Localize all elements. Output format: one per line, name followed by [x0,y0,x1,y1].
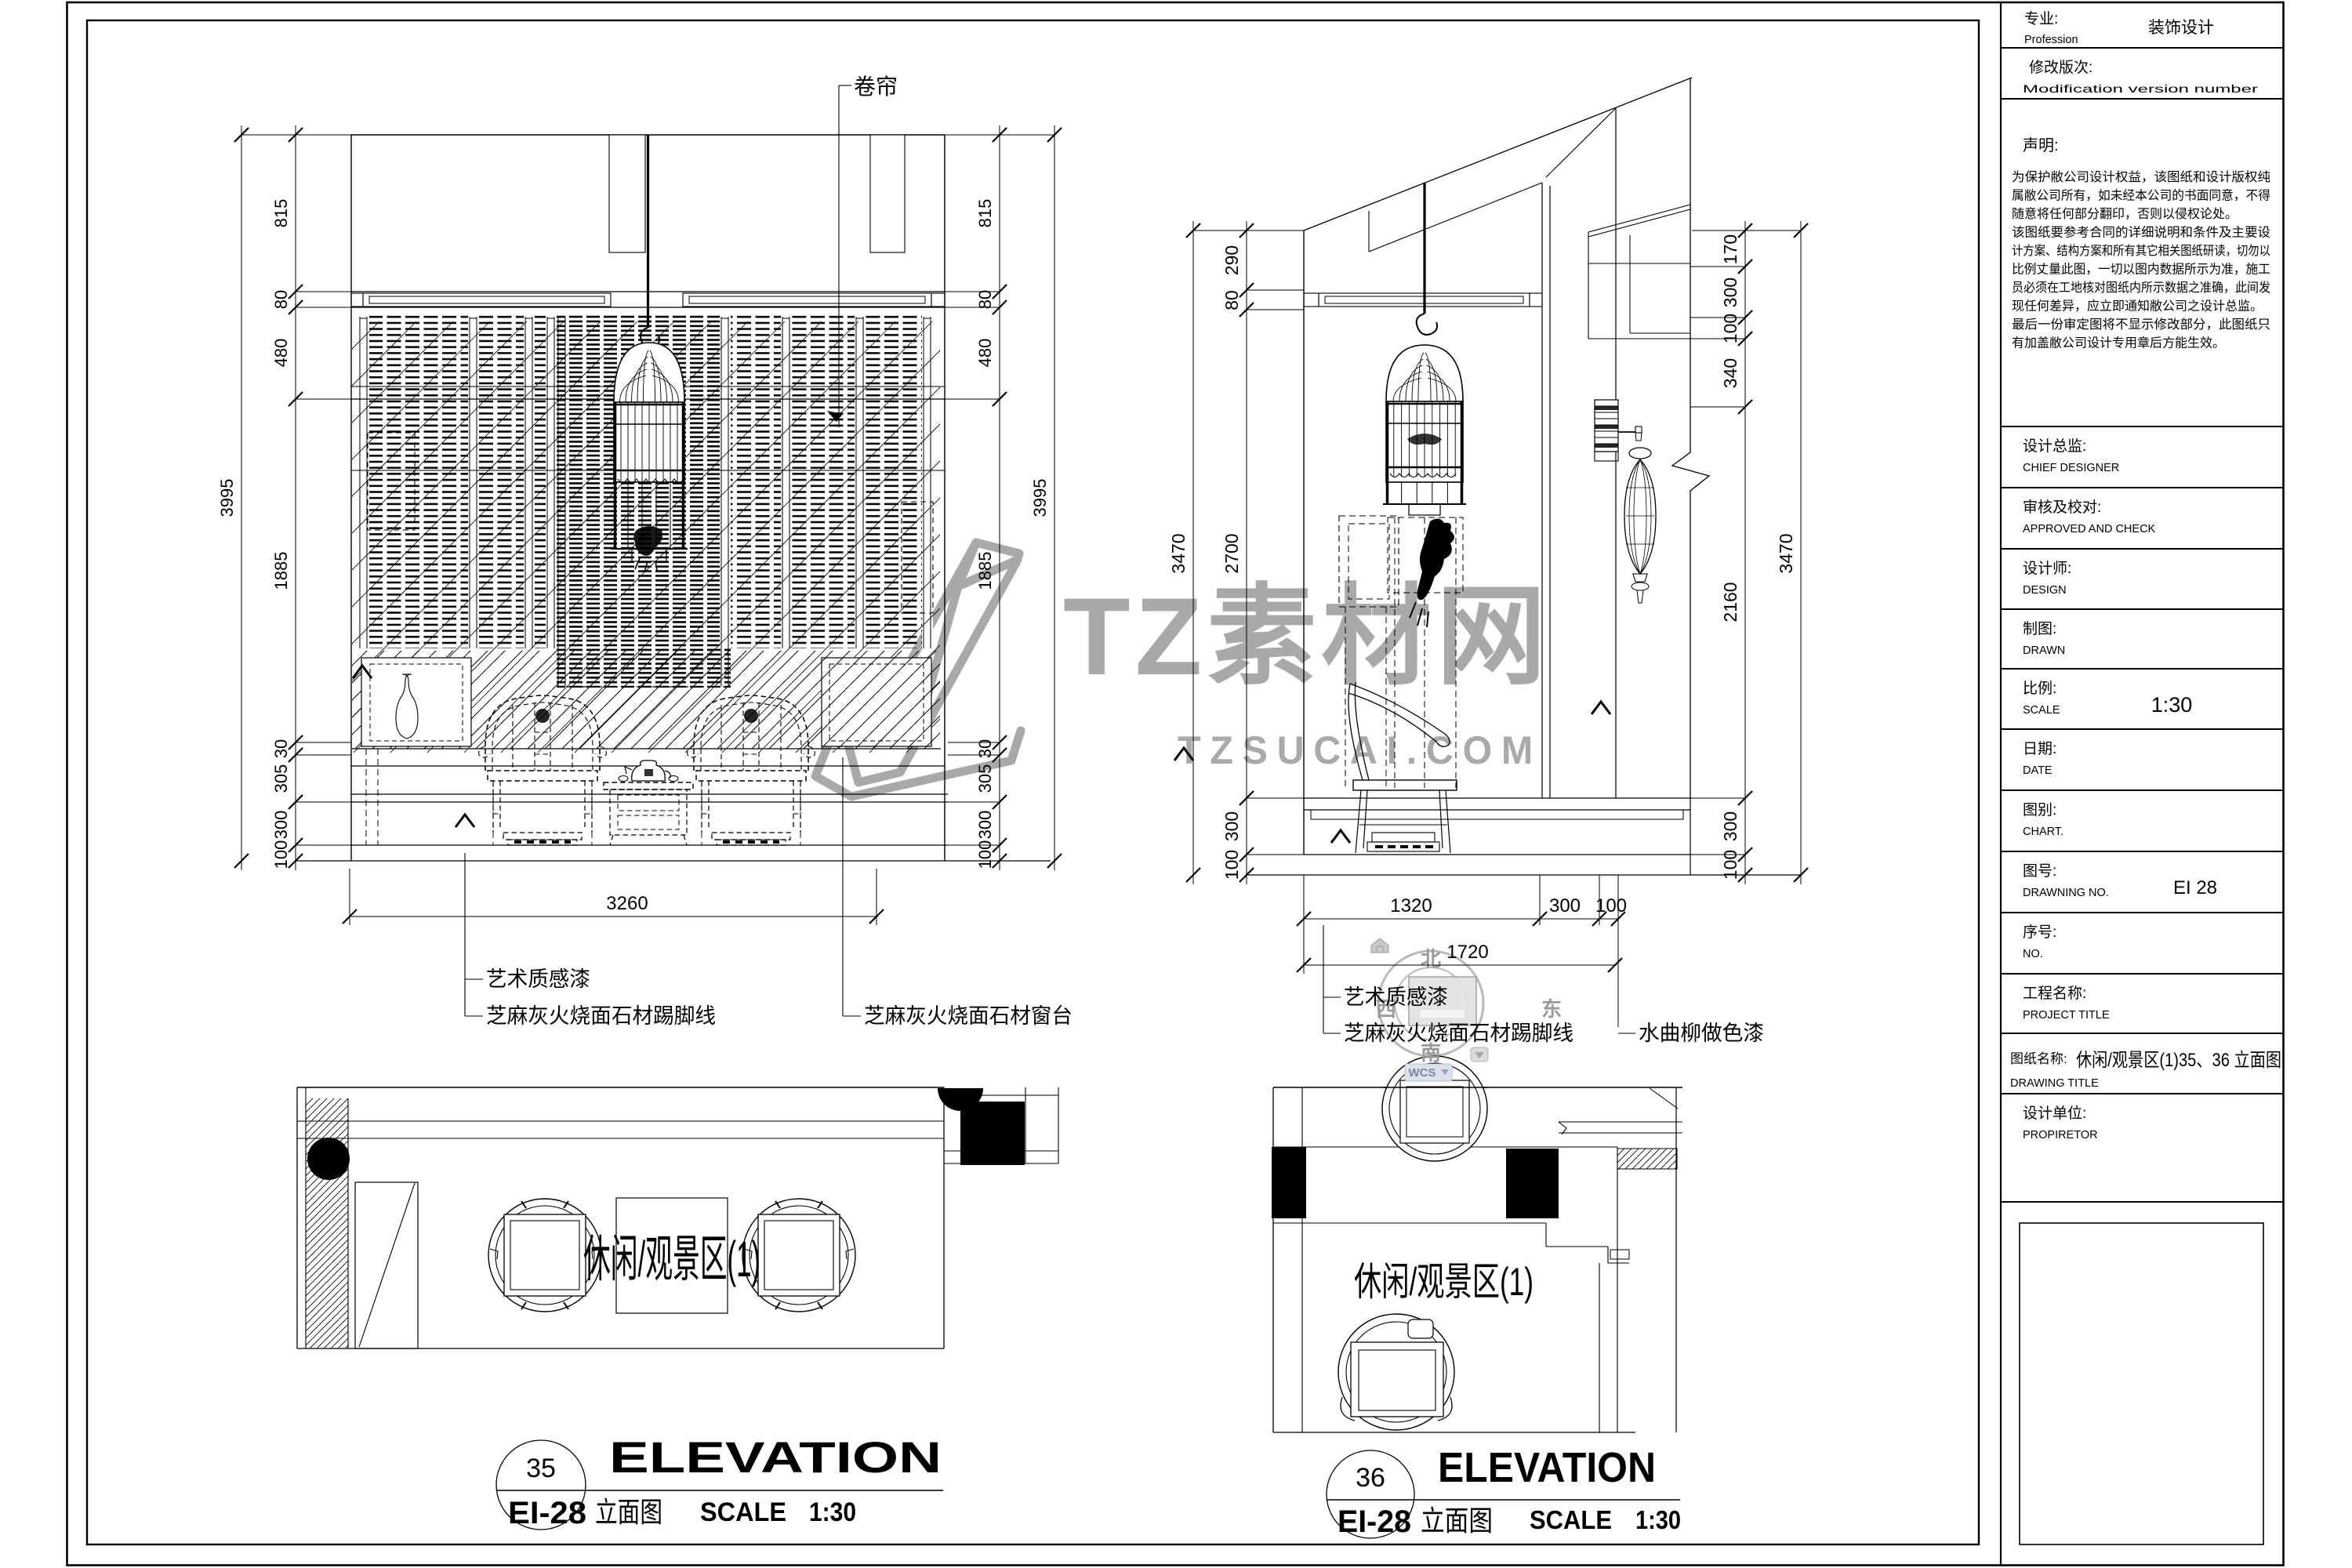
svg-text:审核及校对:: 审核及校对: [2023,499,2101,516]
svg-text:815: 815 [271,199,291,228]
svg-text:480: 480 [271,339,291,368]
svg-text:休闲/观景区(1): 休闲/观景区(1) [1354,1260,1534,1304]
svg-text:比例:: 比例: [2023,680,2056,697]
svg-text:图别:: 图别: [2023,801,2056,818]
svg-text:艺术质感漆: 艺术质感漆 [486,967,590,991]
svg-text:ELEVATION: ELEVATION [609,1432,942,1482]
svg-text:1:30: 1:30 [2151,693,2193,717]
svg-text:APPROVED AND CHECK: APPROVED AND CHECK [2023,523,2156,535]
svg-text:现任何差异，应立即通知敝公司之设计总监。: 现任何差异，应立即通知敝公司之设计总监。 [2012,299,2263,314]
svg-text:1720: 1720 [1446,942,1488,963]
svg-text:声明:: 声明: [2023,136,2059,154]
svg-text:DESIGN: DESIGN [2023,584,2067,597]
svg-text:100: 100 [1595,895,1627,916]
svg-text:EI 28: EI 28 [2173,877,2217,898]
svg-text:序号:: 序号: [2023,924,2056,941]
svg-text:南: 南 [1421,1041,1441,1065]
svg-text:CHIEF DESIGNER: CHIEF DESIGNER [2023,462,2119,474]
svg-text:300: 300 [271,811,291,840]
svg-text:芝麻灰火烧面石材窗台: 芝麻灰火烧面石材窗台 [864,1004,1073,1028]
svg-text:80: 80 [975,290,995,309]
svg-text:305: 305 [975,764,995,793]
svg-text:立面图: 立面图 [595,1496,662,1528]
svg-text:Modification version number: Modification version number [2023,82,2259,95]
svg-text:设计单位:: 设计单位: [2023,1105,2086,1122]
svg-text:员必须在工地核对图纸内所示数据之准确，此间发: 员必须在工地核对图纸内所示数据之准确，此间发 [2012,281,2270,295]
svg-text:DATE: DATE [2023,764,2053,777]
svg-text:图纸名称:: 图纸名称: [2010,1051,2067,1066]
svg-text:2700: 2700 [1221,533,1242,573]
svg-text:设计总监:: 设计总监: [2023,437,2086,455]
svg-text:80: 80 [1221,290,1242,310]
svg-text:制图:: 制图: [2023,620,2056,637]
svg-text:1320: 1320 [1390,895,1432,916]
svg-text:100: 100 [1720,850,1740,880]
svg-text:DRAWN: DRAWN [2023,644,2065,657]
svg-text:305: 305 [271,764,291,793]
svg-text:图号:: 图号: [2023,863,2056,880]
svg-text:30: 30 [975,739,995,758]
svg-text:属敝公司所有，如未经本公司的书面同意，不得: 属敝公司所有，如未经本公司的书面同意，不得 [2012,188,2270,203]
svg-text:休闲/观景区(1)35、36 立面图: 休闲/观景区(1)35、36 立面图 [2076,1050,2281,1071]
svg-text:PROPIRETOR: PROPIRETOR [2023,1129,2098,1142]
svg-text:ELEVATION: ELEVATION [1438,1444,1656,1491]
svg-text:有加盖敝公司设计专用章后方能生效。: 有加盖敝公司设计专用章后方能生效。 [2012,336,2225,350]
svg-text:SCALE: SCALE [700,1497,786,1527]
svg-text:NO.: NO. [2023,948,2043,960]
svg-text:Profession: Profession [2024,34,2078,46]
svg-text:300: 300 [1221,811,1242,841]
svg-text:100: 100 [975,840,995,869]
svg-text:专业:: 专业: [2024,10,2058,27]
svg-text:300: 300 [1720,278,1740,307]
svg-text:30: 30 [271,739,291,758]
svg-text:艺术质感漆: 艺术质感漆 [1344,985,1448,1009]
svg-text:3470: 3470 [1776,533,1796,573]
svg-text:WCS: WCS [1409,1066,1436,1080]
svg-text:最后一份审定图将不显示修改部分，此图纸只: 最后一份审定图将不显示修改部分，此图纸只 [2012,318,2270,332]
svg-text:3470: 3470 [1168,533,1189,573]
svg-text:CHART.: CHART. [2023,826,2063,838]
svg-text:3260: 3260 [606,893,648,914]
svg-text:1:30: 1:30 [809,1497,856,1527]
svg-text:水曲柳做色漆: 水曲柳做色漆 [1639,1022,1764,1045]
svg-text:TZ素材网: TZ素材网 [1063,575,1551,698]
svg-text:芝麻灰火烧面石材踢脚线: 芝麻灰火烧面石材踢脚线 [486,1004,716,1028]
svg-text:北: 北 [1421,947,1441,971]
svg-text:480: 480 [975,339,995,368]
svg-text:工程名称:: 工程名称: [2023,985,2086,1002]
svg-text:300: 300 [1720,811,1740,841]
svg-text:300: 300 [975,811,995,840]
svg-text:SCALE: SCALE [2023,704,2060,717]
svg-text:卷帘: 卷帘 [854,74,898,99]
svg-text:35: 35 [526,1454,556,1483]
svg-text:为保护敝公司设计权益，该图纸和设计版权纯: 为保护敝公司设计权益，该图纸和设计版权纯 [2012,170,2270,184]
svg-text:170: 170 [1720,234,1740,264]
svg-text:芝麻灰火烧面石材踢脚线: 芝麻灰火烧面石材踢脚线 [1344,1022,1573,1045]
svg-text:1885: 1885 [271,552,291,590]
svg-text:300: 300 [1549,895,1581,916]
svg-text:日期:: 日期: [2023,740,2056,757]
svg-text:比例丈量此图，一切以图内数据所示为准，施工: 比例丈量此图，一切以图内数据所示为准，施工 [2012,263,2270,277]
svg-text:3995: 3995 [217,479,237,517]
svg-text:EI-28: EI-28 [1338,1504,1411,1539]
svg-text:100: 100 [1221,850,1242,880]
svg-text:290: 290 [1221,245,1242,275]
svg-text:立面图: 立面图 [1421,1504,1493,1537]
svg-text:1:30: 1:30 [1635,1505,1681,1534]
svg-text:休闲/观景区(1): 休闲/观景区(1) [583,1231,760,1287]
svg-text:DRAWNING NO.: DRAWNING NO. [2023,887,2109,899]
svg-text:80: 80 [271,290,291,309]
svg-text:36: 36 [1356,1463,1385,1493]
svg-text:东: 东 [1541,997,1562,1021]
svg-text:1885: 1885 [975,552,995,590]
svg-text:815: 815 [975,199,995,228]
svg-text:3995: 3995 [1030,479,1050,517]
svg-text:2160: 2160 [1720,582,1740,622]
svg-text:SCALE: SCALE [1530,1505,1612,1534]
svg-text:DRAWING TITLE: DRAWING TITLE [2010,1077,2099,1090]
svg-text:该图纸要参考合同的详细说明和条件及主要设: 该图纸要参考合同的详细说明和条件及主要设 [2012,226,2270,240]
svg-text:装饰设计: 装饰设计 [2148,19,2214,37]
svg-text:修改版次:: 修改版次: [2029,59,2092,76]
svg-text:随意将任何部分翻印，否则以侵权论处。: 随意将任何部分翻印，否则以侵权论处。 [2012,206,2238,221]
svg-text:设计师:: 设计师: [2023,560,2071,577]
svg-text:EI-28: EI-28 [508,1496,586,1530]
svg-text:TZSUCAI.COM: TZSUCAI.COM [1178,728,1542,772]
svg-text:PROJECT TITLE: PROJECT TITLE [2023,1009,2110,1022]
svg-text:计方案、结构方案和所有其它相关图纸研读，切勿以: 计方案、结构方案和所有其它相关图纸研读，切勿以 [2012,244,2270,258]
svg-text:100: 100 [271,840,291,869]
svg-text:340: 340 [1720,358,1740,388]
